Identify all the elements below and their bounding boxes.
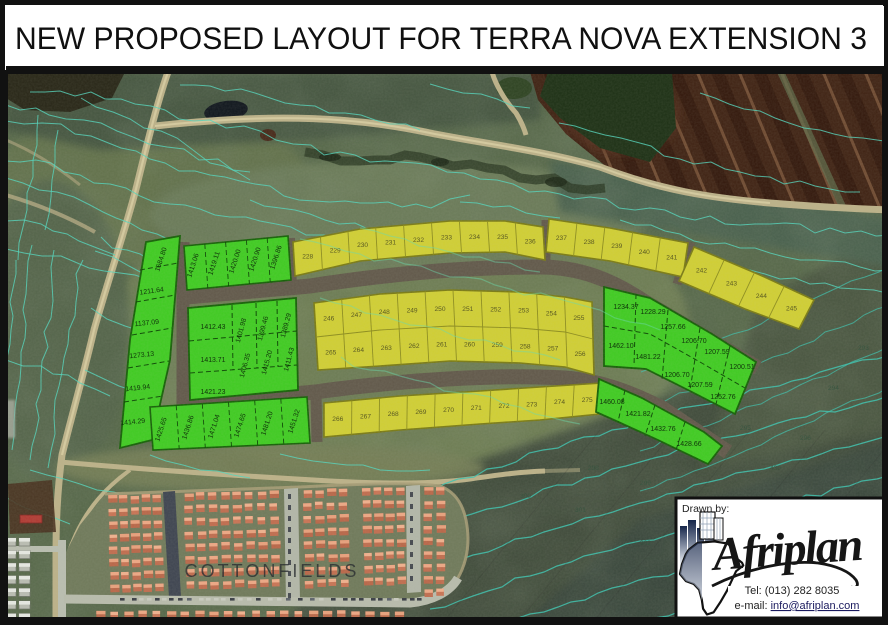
svg-text:e-mail: info@afriplan.com: e-mail: info@afriplan.com xyxy=(735,600,860,612)
svg-text:Tel: (013) 282 8035: Tel: (013) 282 8035 xyxy=(745,585,840,597)
svg-text:Afriplan: Afriplan xyxy=(708,519,863,581)
svg-text:NEW PROPOSED LAYOUT FOR TERRA: NEW PROPOSED LAYOUT FOR TERRA NOVA EXTEN… xyxy=(15,20,867,56)
